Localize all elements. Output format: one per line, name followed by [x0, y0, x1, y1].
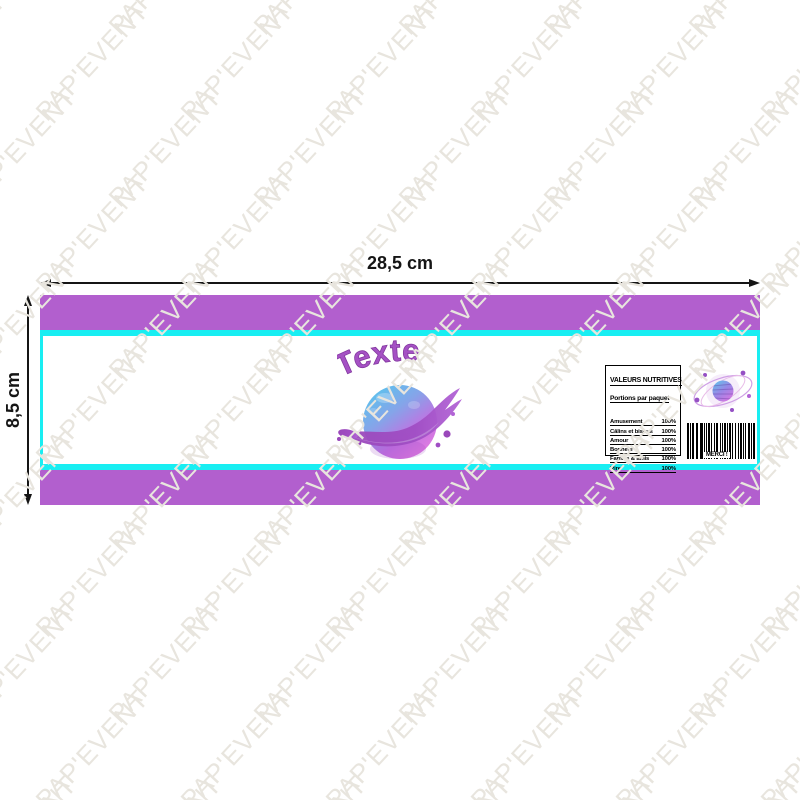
watermark-text: PAP'EVENT [465, 512, 590, 643]
watermark-text: PAP'EVENT [103, 0, 228, 41]
watermark-text: PAP'EVENT [320, 512, 445, 643]
bottle-label: Texte [40, 295, 760, 505]
width-dimension-label: 28,5 cm [0, 253, 800, 274]
watermark-text: PAP'EVENT [103, 598, 228, 729]
watermark-text: PAP'EVENT [0, 512, 10, 643]
planet-illustration-icon [335, 381, 465, 461]
watermark-text: PAP'EVENT [393, 598, 518, 729]
height-dimension-arrow [22, 295, 34, 505]
watermark-text: PAP'EVENT [248, 82, 373, 213]
watermark-text: PAP'EVENT [320, 684, 445, 800]
watermark-text: PAP'EVENT [248, 770, 373, 800]
watermark-text: PAP'EVENT [683, 598, 800, 729]
watermark-text: PAP'EVENT [538, 770, 663, 800]
watermark-text: PAP'EVENT [175, 684, 300, 800]
nutrition-row: Amusement 100% [610, 417, 676, 426]
orbit-planet-icon [690, 363, 756, 421]
watermark-text: PAP'EVENT [0, 168, 10, 299]
watermark-text: PAP'EVENT [0, 684, 10, 800]
watermark-text: PAP'EVENT [248, 0, 373, 41]
watermark-text: PAP'EVENT [610, 512, 735, 643]
watermark-text: PAP'EVENT [0, 598, 83, 729]
nutrition-subtitle: Portions par paquet [610, 395, 669, 403]
nutrition-row: Bonheur 100% [610, 445, 676, 454]
label-title: Texte [337, 335, 457, 385]
svg-text:Texte: Texte [337, 335, 421, 383]
watermark-text: PAP'EVENT [320, 0, 445, 127]
watermark-text: PAP'EVENT [465, 684, 590, 800]
nutrition-facts-box: VALEURS NUTRITIVES Portions par paquet A… [605, 365, 681, 456]
watermark-text: PAP'EVENT [755, 340, 800, 471]
nutrition-rows: Amusement 100% Câlins et bisous 100% Amo… [610, 417, 676, 473]
watermark-text: PAP'EVENT [465, 0, 590, 127]
watermark-text: PAP'EVENT [683, 0, 800, 41]
nutrition-row: Famille & amis 100% [610, 454, 676, 463]
watermark-text: PAP'EVENT [755, 512, 800, 643]
nutrition-title: VALEURS NUTRITIVES [610, 377, 682, 386]
watermark-text: PAP'EVENT [755, 684, 800, 800]
watermark-text: PAP'EVENT [0, 82, 83, 213]
watermark-text: PAP'EVENT [175, 0, 300, 127]
watermark-text: PAP'EVENT [393, 770, 518, 800]
watermark-text: PAP'EVENT [538, 82, 663, 213]
watermark-text: PAP'EVENT [0, 770, 83, 800]
watermark-text: PAP'EVENT [683, 770, 800, 800]
nutrition-row: Câlins et bisous 100% [610, 426, 676, 435]
barcode-caption: MERCI ! [704, 452, 730, 458]
watermark-text: PAP'EVENT [610, 684, 735, 800]
watermark-text: PAP'EVENT [30, 684, 155, 800]
watermark-text: PAP'EVENT [683, 82, 800, 213]
watermark-text: PAP'EVENT [610, 0, 735, 127]
watermark-text: PAP'EVENT [30, 512, 155, 643]
watermark-text: PAP'EVENT [393, 82, 518, 213]
watermark-text: PAP'EVENT [248, 598, 373, 729]
watermark-text: PAP'EVENT [0, 0, 83, 41]
watermark-text: PAP'EVENT [0, 0, 10, 127]
label-template-preview: 28,5 cm 8,5 cm Texte [0, 0, 800, 800]
watermark-text: PAP'EVENT [755, 168, 800, 299]
watermark-text: PAP'EVENT [175, 512, 300, 643]
height-dimension-label: 8,5 cm [3, 360, 23, 440]
width-dimension-arrow [40, 277, 760, 289]
watermark-text: PAP'EVENT [755, 0, 800, 127]
watermark-text: PAP'EVENT [538, 598, 663, 729]
barcode-bar [753, 423, 755, 459]
watermark-text: PAP'EVENT [538, 0, 663, 41]
barcode: MERCI ! [687, 423, 755, 459]
watermark-text: PAP'EVENT [393, 0, 518, 41]
watermark-text: PAP'EVENT [103, 770, 228, 800]
watermark-text: PAP'EVENT [30, 0, 155, 127]
nutrition-row: Amour 100% [610, 436, 676, 445]
nutrition-row: Rire 100% [610, 463, 676, 472]
watermark-text: PAP'EVENT [103, 82, 228, 213]
